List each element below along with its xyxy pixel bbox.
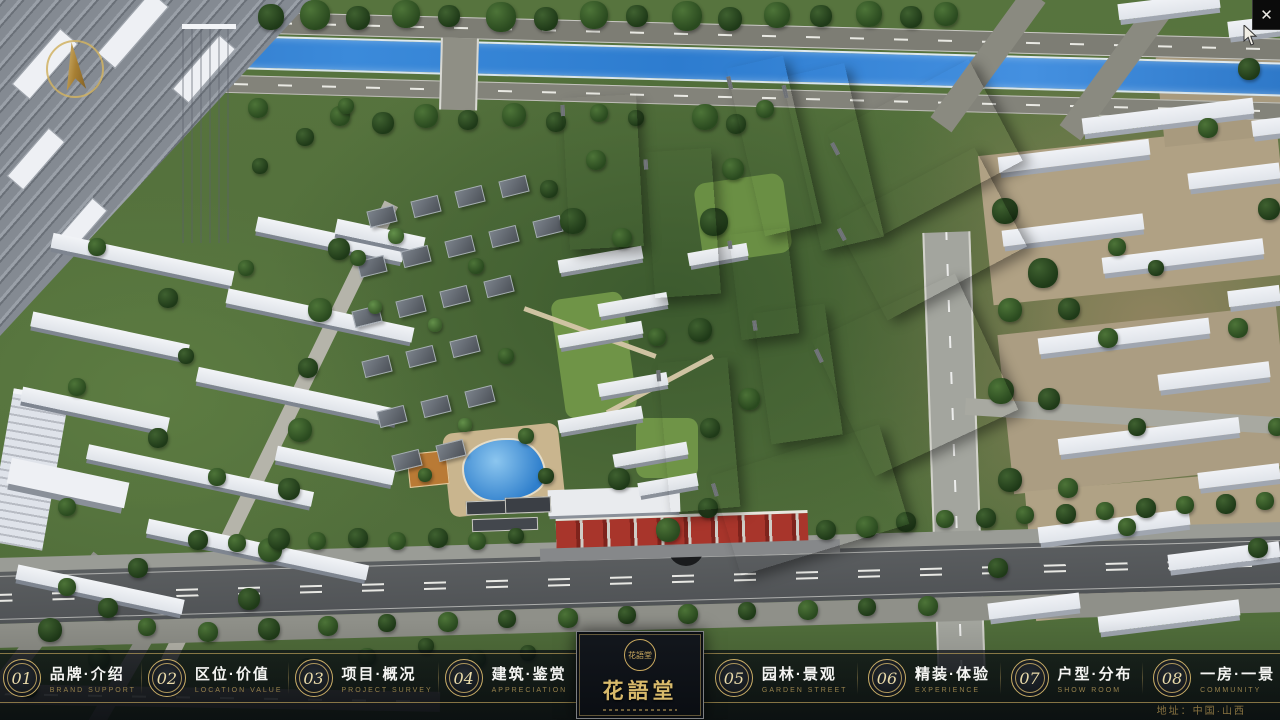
tree: [700, 418, 720, 438]
tree: [900, 6, 922, 28]
menu-separator: [857, 662, 858, 694]
tree: [148, 428, 168, 448]
tree: [248, 98, 268, 118]
menu-number-badge: 07: [1011, 659, 1049, 697]
menu-item-location-value[interactable]: 02 区位·价值 LOCATION VALUE: [148, 659, 283, 697]
villa-roof: [444, 235, 475, 258]
midrise-slab: [558, 246, 644, 274]
villa-roof: [464, 385, 495, 408]
menu-item-interior-experience[interactable]: 06 精装·体验 EXPERIENCE: [868, 659, 990, 697]
tree: [328, 238, 350, 260]
tree: [934, 2, 958, 26]
lawn: [693, 172, 793, 264]
tree: [726, 114, 746, 134]
villa-roof: [351, 305, 382, 328]
menu-label-zh: 品牌·介绍: [50, 663, 136, 684]
tree: [208, 468, 226, 486]
tree: [560, 208, 586, 234]
tree: [388, 228, 404, 244]
villa-roof: [454, 185, 485, 208]
seal-emblem-icon: 花語堂: [624, 639, 656, 671]
menu-right-group: 05 园林·景观 GARDEN STREET 06 精装·体验 EXPERIEN…: [710, 654, 1280, 702]
tree: [856, 1, 882, 27]
residential-tower: [812, 274, 1019, 477]
villa-roof: [449, 335, 480, 358]
tree: [458, 418, 472, 432]
tree: [502, 103, 526, 127]
menu-separator: [288, 662, 289, 694]
menu-number-badge: 05: [715, 659, 753, 697]
villa-roof: [488, 225, 519, 248]
clubhouse-roof: [472, 517, 538, 532]
tree: [252, 158, 268, 174]
menu-item-project-overview[interactable]: 03 项目·概况 PROJECT SURVEY: [295, 659, 433, 697]
menu-item-brand-intro[interactable]: 01 品牌·介绍 BRAND SUPPORT: [3, 659, 136, 697]
compass-icon: [44, 34, 104, 96]
menu-number-badge: 03: [295, 659, 333, 697]
tree: [414, 104, 438, 128]
menu-left-group: 01 品牌·介绍 BRAND SUPPORT 02 区位·价值 LOCATION…: [0, 654, 570, 702]
tree: [648, 328, 666, 346]
menu-separator: [438, 662, 439, 694]
menu-separator: [141, 662, 142, 694]
menu-label-zh: 精装·体验: [915, 663, 990, 684]
menu-label-zh: 园林·景观: [762, 663, 848, 684]
menu-label-zh: 项目·概况: [342, 663, 433, 684]
villa-roof: [405, 345, 436, 368]
menu-number-badge: 06: [868, 659, 906, 697]
tree: [368, 300, 382, 314]
menu-item-architecture[interactable]: 04 建筑·鉴赏 APPRECIATION: [445, 659, 568, 697]
menu-item-floorplan-distribution[interactable]: 07 户型·分布 SHOW ROOM: [1011, 659, 1133, 697]
tree: [348, 528, 368, 548]
kindergarten: [406, 450, 449, 488]
tree: [468, 258, 484, 274]
menu-label-en: COMMUNITY: [1200, 687, 1275, 694]
menu-item-room-view[interactable]: 08 一房·一景 COMMUNITY: [1153, 659, 1275, 697]
sales-presentation-app: ✕ 01 品牌·介绍 BRAND SUPPORT 02 区位·价值 LOCATI…: [0, 0, 1280, 720]
tree: [428, 318, 442, 332]
aerial-masterplan-render: [0, 0, 1280, 720]
villa-roof: [400, 245, 431, 268]
project-logo-panel[interactable]: 花語堂 花語堂: [576, 631, 704, 719]
project-address: 地址：中国·山西: [1157, 702, 1246, 717]
villa-roof: [361, 355, 392, 378]
menu-separator: [1142, 662, 1143, 694]
tree: [296, 128, 314, 146]
apartment-slab: [275, 446, 395, 486]
tree: [158, 288, 178, 308]
tree: [372, 112, 394, 134]
mouse-cursor: [1243, 25, 1259, 52]
villa-roof: [439, 285, 470, 308]
menu-label-zh: 一房·一景: [1200, 663, 1275, 684]
tree: [628, 110, 644, 126]
menu-label-zh: 户型·分布: [1058, 663, 1133, 684]
tree: [88, 238, 106, 256]
villa-roof: [483, 275, 514, 298]
tree: [586, 150, 606, 170]
gate-house-roof: [505, 496, 552, 514]
tree: [268, 528, 290, 550]
menu-label-en: LOCATION VALUE: [195, 687, 283, 694]
menu-label-en: PROJECT SURVEY: [342, 687, 433, 694]
tree: [590, 104, 608, 122]
villa-roof: [395, 295, 426, 318]
menu-label-zh: 区位·价值: [195, 663, 283, 684]
tree: [238, 260, 254, 276]
apartment-slab: [30, 312, 190, 360]
ground-parcel: [978, 125, 1280, 306]
tree: [498, 348, 514, 364]
tree: [178, 348, 194, 364]
project-logo-name: 花語堂: [603, 675, 678, 705]
tree: [540, 180, 558, 198]
tree: [188, 530, 208, 550]
menu-number-badge: 04: [445, 659, 483, 697]
menu-number-badge: 08: [1153, 659, 1191, 697]
villa-roof: [376, 405, 407, 428]
entrance-canopy: [548, 486, 681, 517]
swimming-pool: [462, 438, 546, 502]
tree: [546, 112, 566, 132]
tree: [692, 104, 718, 130]
highrise-tower: [182, 24, 236, 243]
menu-label-en: APPRECIATION: [492, 687, 568, 694]
logo-tagline-rule: [603, 709, 677, 711]
ground-parcel: [997, 306, 1280, 494]
menu-number-badge: 01: [3, 659, 41, 697]
menu-label-en: BRAND SUPPORT: [50, 687, 136, 694]
villa-roof: [532, 215, 563, 238]
villa-roof: [420, 395, 451, 418]
tree: [458, 110, 478, 130]
menu-number-badge: 02: [148, 659, 186, 697]
residential-tower: [562, 94, 644, 250]
menu-item-landscape[interactable]: 05 园林·景观 GARDEN STREET: [715, 659, 848, 697]
menu-label-en: EXPERIENCE: [915, 687, 990, 694]
residential-tower: [753, 304, 843, 445]
tree: [68, 378, 86, 396]
villa-roof: [410, 195, 441, 218]
tree: [688, 318, 712, 342]
tree: [1058, 298, 1080, 320]
tree: [58, 498, 76, 516]
bridge: [439, 38, 479, 111]
tree: [810, 5, 832, 27]
tree: [278, 478, 300, 500]
tree: [308, 532, 326, 550]
apartment-slab: [1227, 285, 1280, 307]
tree: [612, 228, 632, 248]
tree: [738, 388, 760, 410]
menu-separator: [1000, 662, 1001, 694]
tree: [896, 512, 916, 532]
menu-label-en: GARDEN STREET: [762, 687, 848, 694]
lawn: [636, 418, 698, 478]
menu-label-zh: 建筑·鉴赏: [492, 663, 568, 684]
tree: [338, 98, 354, 114]
tree: [330, 106, 350, 126]
villa-roof: [498, 175, 529, 198]
menu-label-en: SHOW ROOM: [1058, 687, 1133, 694]
close-icon: ✕: [1260, 6, 1273, 24]
tree: [722, 158, 744, 180]
